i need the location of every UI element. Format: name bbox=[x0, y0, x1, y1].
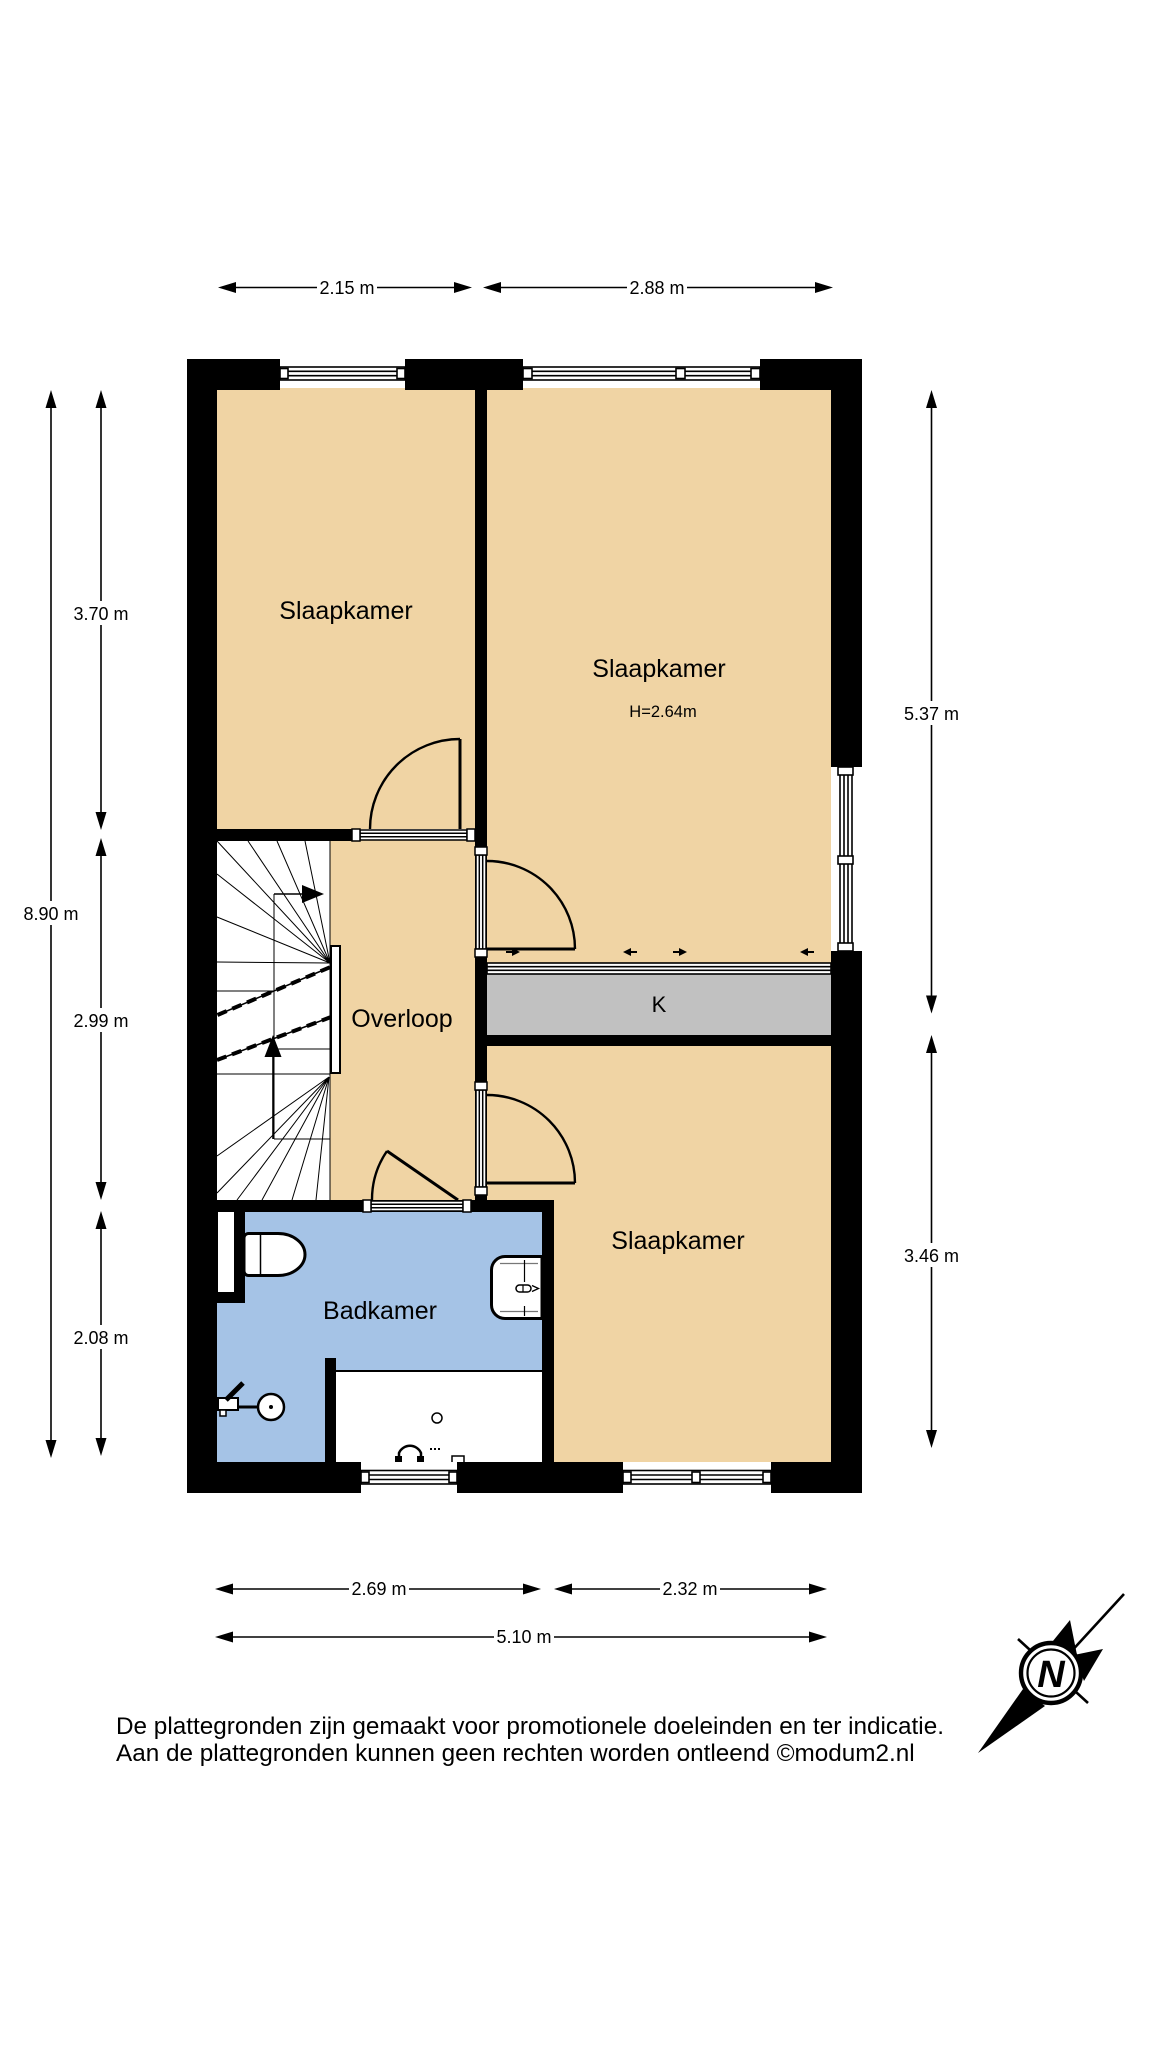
svg-text:H=2.64m: H=2.64m bbox=[629, 703, 696, 721]
svg-text:5.37 m: 5.37 m bbox=[904, 704, 959, 724]
svg-text:2.32 m: 2.32 m bbox=[662, 1579, 717, 1599]
svg-text:Slaapkamer: Slaapkamer bbox=[592, 655, 725, 683]
svg-text:2.99 m: 2.99 m bbox=[73, 1011, 128, 1031]
svg-text:5.10 m: 5.10 m bbox=[496, 1627, 551, 1647]
svg-text:De plattegronden zijn gemaakt: De plattegronden zijn gemaakt voor promo… bbox=[116, 1713, 944, 1740]
svg-text:2.08 m: 2.08 m bbox=[73, 1328, 128, 1348]
svg-text:Slaapkamer: Slaapkamer bbox=[279, 597, 412, 625]
svg-text:Slaapkamer: Slaapkamer bbox=[611, 1227, 744, 1255]
svg-text:2.69 m: 2.69 m bbox=[351, 1579, 406, 1599]
svg-text:3.46 m: 3.46 m bbox=[904, 1246, 959, 1266]
svg-text:8.90 m: 8.90 m bbox=[23, 904, 78, 924]
svg-text:Badkamer: Badkamer bbox=[323, 1297, 437, 1325]
svg-text:2.15 m: 2.15 m bbox=[319, 278, 374, 298]
svg-text:Aan de plattegronden kunnen ge: Aan de plattegronden kunnen geen rechten… bbox=[116, 1740, 915, 1767]
svg-text:Overloop: Overloop bbox=[351, 1005, 452, 1033]
svg-text:2.88 m: 2.88 m bbox=[629, 278, 684, 298]
svg-text:3.70 m: 3.70 m bbox=[73, 604, 128, 624]
svg-text:K: K bbox=[652, 992, 667, 1017]
svg-text:N: N bbox=[1037, 1654, 1066, 1696]
